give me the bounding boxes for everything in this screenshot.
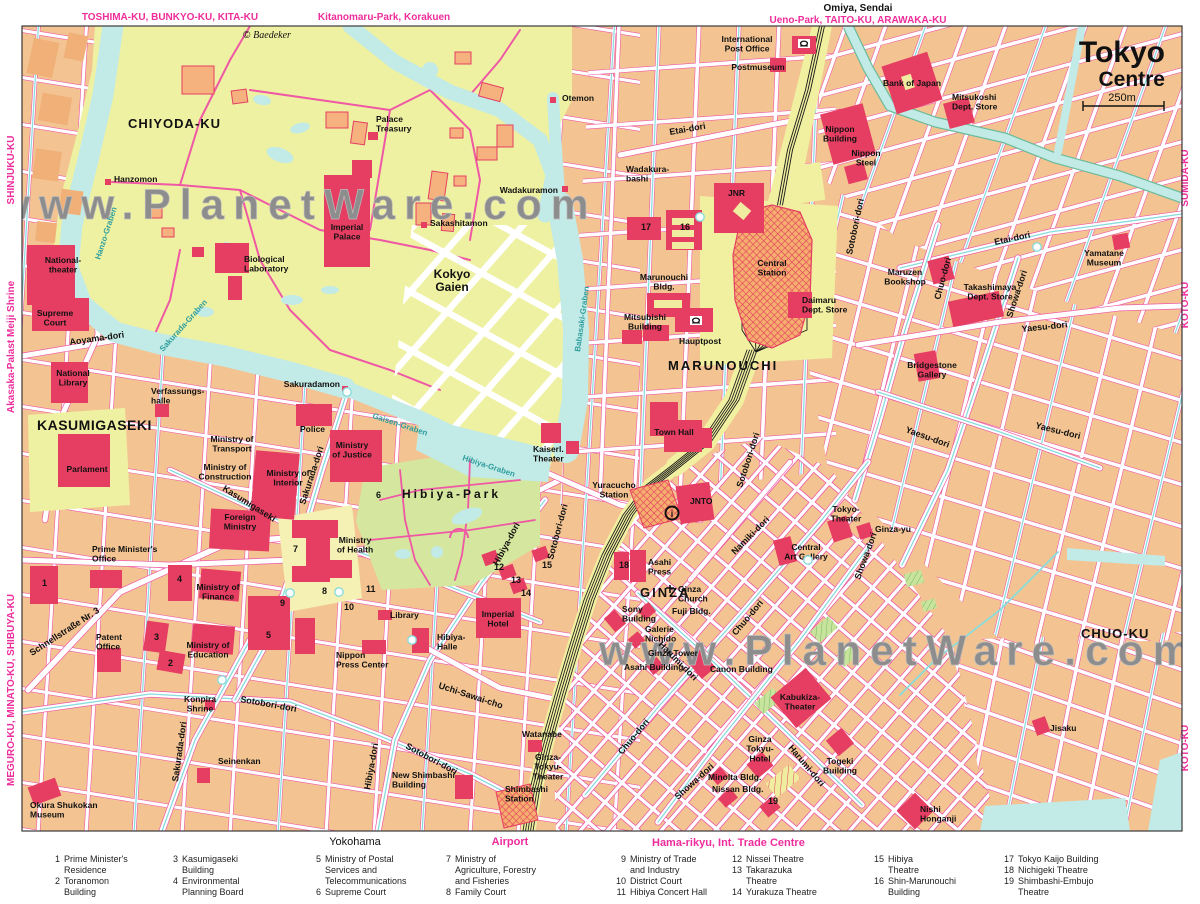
- svg-text:Bank of Japan: Bank of Japan: [883, 78, 941, 88]
- svg-text:250m: 250m: [1108, 92, 1136, 104]
- svg-text:8: 8: [322, 586, 327, 596]
- svg-text:Hama-rikyu, Int. Trade Centre: Hama-rikyu, Int. Trade Centre: [652, 837, 805, 849]
- svg-text:MitsubishiBuilding: MitsubishiBuilding: [624, 312, 666, 332]
- svg-text:Library: Library: [390, 610, 419, 620]
- svg-text:CHIYODA-KU: CHIYODA-KU: [128, 116, 221, 131]
- svg-text:16: 16: [680, 222, 690, 232]
- svg-text:Fuji Bldg.: Fuji Bldg.: [672, 606, 711, 616]
- svg-text:Akasaka-Palast Meiji Shrine: Akasaka-Palast Meiji Shrine: [6, 280, 17, 413]
- svg-text:National-theater: National-theater: [45, 255, 82, 275]
- svg-text:Sakuradamon: Sakuradamon: [284, 379, 340, 389]
- svg-text:GinzaTokyu-Hotel: GinzaTokyu-Hotel: [746, 734, 773, 763]
- svg-text:3KasumigasekiBuilding4Environm: 3KasumigasekiBuilding4EnvironmentalPlann…: [173, 854, 244, 897]
- svg-text:6: 6: [376, 490, 381, 500]
- svg-text:NipponBuilding: NipponBuilding: [823, 124, 857, 144]
- svg-text:Ginza Tower: Ginza Tower: [648, 648, 699, 658]
- svg-text:BiologicalLaboratory: BiologicalLaboratory: [244, 254, 289, 274]
- svg-text:GalerieNichido: GalerieNichido: [645, 624, 676, 644]
- svg-text:14: 14: [521, 588, 531, 598]
- svg-text:Jisaku: Jisaku: [1050, 723, 1076, 733]
- svg-text:KonpiraShrine: KonpiraShrine: [184, 694, 216, 714]
- svg-text:CHUO-KU: CHUO-KU: [1081, 626, 1149, 641]
- svg-text:Asahi Building: Asahi Building: [624, 662, 684, 672]
- svg-text:JNR: JNR: [728, 188, 745, 198]
- svg-text:Canon Building: Canon Building: [710, 664, 773, 674]
- svg-text:Centre: Centre: [1098, 68, 1165, 91]
- svg-text:Postmuseum: Postmuseum: [731, 62, 785, 72]
- svg-text:Ueno-Park, TAITO-KU, ARAWAKA-K: Ueno-Park, TAITO-KU, ARAWAKA-KU: [769, 15, 946, 26]
- svg-text:InternationalPost Office: InternationalPost Office: [721, 34, 772, 54]
- svg-text:Kabukiza-Theater: Kabukiza-Theater: [780, 692, 820, 712]
- svg-text:2: 2: [168, 658, 173, 668]
- svg-text:MEGURO-KU, MINATO-KU, SHIBUYA-: MEGURO-KU, MINATO-KU, SHIBUYA-KU: [6, 594, 17, 786]
- svg-text:AsahiPress: AsahiPress: [648, 557, 671, 577]
- svg-text:Ministry ofEducation: Ministry ofEducation: [187, 640, 230, 660]
- svg-text:CentralStation: CentralStation: [757, 258, 786, 278]
- svg-text:Ministry ofFinance: Ministry ofFinance: [197, 582, 240, 602]
- svg-text:MitsukoshiDept. Store: MitsukoshiDept. Store: [952, 92, 998, 112]
- svg-text:12Nissei Theatre13TakarazukaTh: 12Nissei Theatre13TakarazukaTheatre14Yur…: [732, 854, 817, 897]
- svg-text:SHINJUKU-KU: SHINJUKU-KU: [6, 136, 17, 205]
- svg-text:15: 15: [542, 560, 552, 570]
- svg-text:Sakashitamon: Sakashitamon: [430, 218, 488, 228]
- svg-text:Omiya, Sendai: Omiya, Sendai: [824, 3, 893, 14]
- svg-text:ImperialPalace: ImperialPalace: [331, 222, 364, 242]
- svg-text:Police: Police: [300, 424, 325, 434]
- svg-text:MaruzenBookshop: MaruzenBookshop: [884, 267, 926, 287]
- svg-text:5: 5: [266, 630, 271, 640]
- svg-text:JNTO: JNTO: [690, 496, 713, 506]
- svg-text:Ginza-Tokyu-Theater: Ginza-Tokyu-Theater: [533, 752, 564, 781]
- svg-text:Hauptpost: Hauptpost: [679, 336, 721, 346]
- svg-text:17: 17: [641, 222, 651, 232]
- svg-text:Ministryof Health: Ministryof Health: [337, 535, 373, 555]
- svg-text:Ministryof Justice: Ministryof Justice: [332, 440, 372, 460]
- svg-text:Parlament: Parlament: [66, 464, 107, 474]
- svg-text:Seinenkan: Seinenkan: [218, 756, 261, 766]
- svg-text:MARUNOUCHI: MARUNOUCHI: [668, 358, 778, 373]
- svg-text:7Ministry ofAgriculture, Fores: 7Ministry ofAgriculture, Forestryand Fis…: [446, 854, 537, 897]
- svg-text:Kitanomaru-Park, Korakuen: Kitanomaru-Park, Korakuen: [318, 12, 450, 23]
- svg-text:PatentOffice: PatentOffice: [96, 632, 122, 652]
- svg-text:4: 4: [177, 574, 182, 584]
- svg-text:Ministry ofConstruction: Ministry ofConstruction: [199, 462, 252, 482]
- svg-text:Ministry ofTransport: Ministry ofTransport: [211, 434, 254, 454]
- svg-text:Town Hall: Town Hall: [654, 427, 694, 437]
- svg-text:Tokyo-Theater: Tokyo-Theater: [831, 504, 862, 524]
- svg-text:TakashimayaDept. Store: TakashimayaDept. Store: [964, 282, 1017, 302]
- svg-text:10: 10: [344, 602, 354, 612]
- svg-text:9: 9: [280, 598, 285, 608]
- svg-text:Tokyo: Tokyo: [1079, 36, 1165, 69]
- svg-text:1: 1: [42, 578, 47, 588]
- svg-text:Otemon: Otemon: [562, 93, 594, 103]
- svg-text:11: 11: [366, 584, 376, 594]
- svg-text:Hanzomon: Hanzomon: [114, 174, 157, 184]
- svg-text:Yokohama: Yokohama: [329, 836, 381, 848]
- svg-text:13: 13: [511, 575, 521, 585]
- svg-text:7: 7: [293, 544, 298, 554]
- svg-text:Nissan Bldg.: Nissan Bldg.: [712, 784, 763, 794]
- svg-text:© Baedeker: © Baedeker: [243, 30, 291, 41]
- svg-text:TOSHIMA-KU, BUNKYO-KU, KITA-KU: TOSHIMA-KU, BUNKYO-KU, KITA-KU: [82, 12, 258, 23]
- svg-text:Watanabe: Watanabe: [522, 729, 562, 739]
- svg-text:KokyoGaien: KokyoGaien: [434, 267, 471, 294]
- svg-text:Hibiya-Park: Hibiya-Park: [402, 487, 501, 501]
- svg-text:Wadakuramon: Wadakuramon: [500, 185, 558, 195]
- svg-text:3: 3: [154, 632, 159, 642]
- svg-text:ForeignMinistry: ForeignMinistry: [224, 512, 257, 532]
- svg-text:12: 12: [494, 562, 504, 572]
- svg-text:9Ministry of Tradeand Industry: 9Ministry of Tradeand Industry10District…: [616, 854, 707, 897]
- svg-text:15HibiyaTheatre16Shin-Marunouc: 15HibiyaTheatre16Shin-MarunouchiBuilding: [874, 854, 956, 897]
- svg-text:18: 18: [619, 560, 629, 570]
- svg-text:Minolta Bldg.: Minolta Bldg.: [708, 772, 761, 782]
- svg-text:i: i: [671, 509, 674, 519]
- svg-text:Kaiserl.Theater: Kaiserl.Theater: [533, 444, 564, 464]
- svg-text:1Prime Minister'sResidence2Tor: 1Prime Minister'sResidence2ToranomonBuil…: [55, 854, 128, 897]
- svg-text:YamataneMuseum: YamataneMuseum: [1084, 248, 1124, 268]
- svg-text:NationalLibrary: NationalLibrary: [56, 368, 90, 388]
- svg-text:Ginza-yu: Ginza-yu: [875, 524, 911, 534]
- svg-text:TogekiBuilding: TogekiBuilding: [823, 756, 857, 776]
- svg-text:19: 19: [768, 796, 778, 806]
- svg-text:17Tokyo Kaijo Building18Nichig: 17Tokyo Kaijo Building18Nichigeki Theatr…: [1004, 854, 1099, 897]
- svg-text:5Ministry of PostalServices an: 5Ministry of PostalServices andTelecommu…: [316, 854, 407, 897]
- svg-text:Airport: Airport: [492, 836, 529, 848]
- svg-text:KASUMIGASEKI: KASUMIGASEKI: [37, 417, 152, 433]
